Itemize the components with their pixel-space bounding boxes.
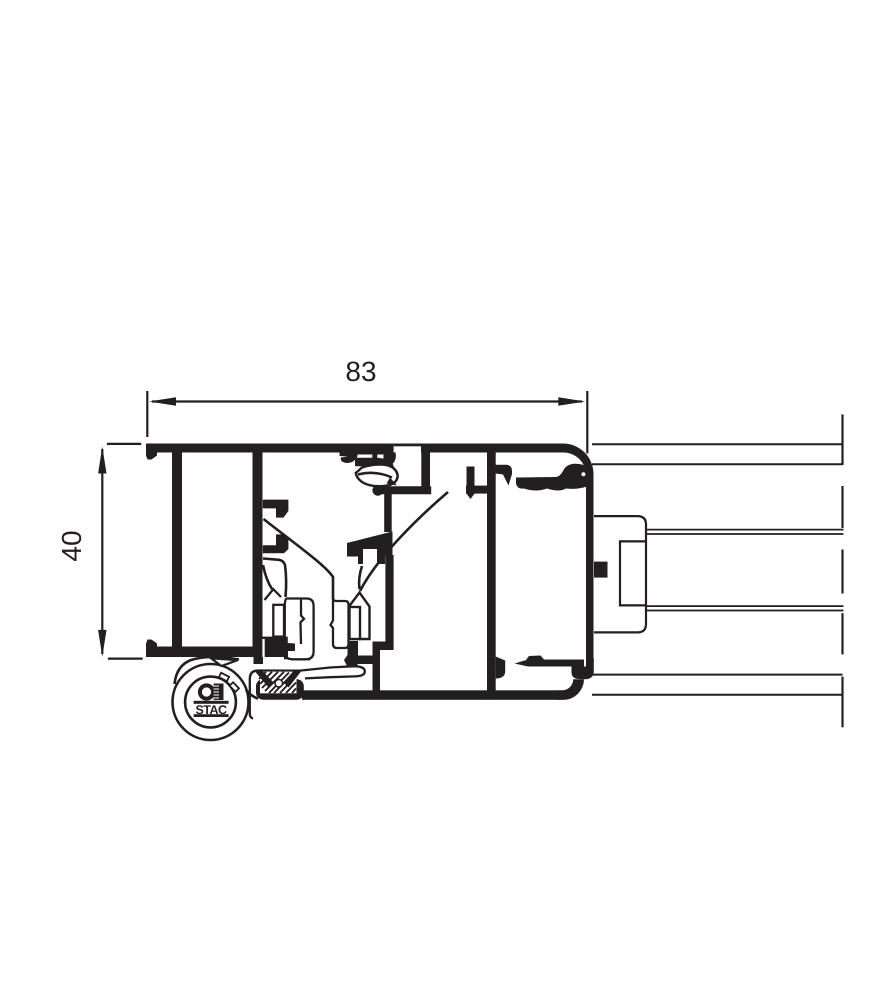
svg-text:40: 40	[56, 530, 87, 561]
svg-text:83: 83	[345, 356, 376, 387]
